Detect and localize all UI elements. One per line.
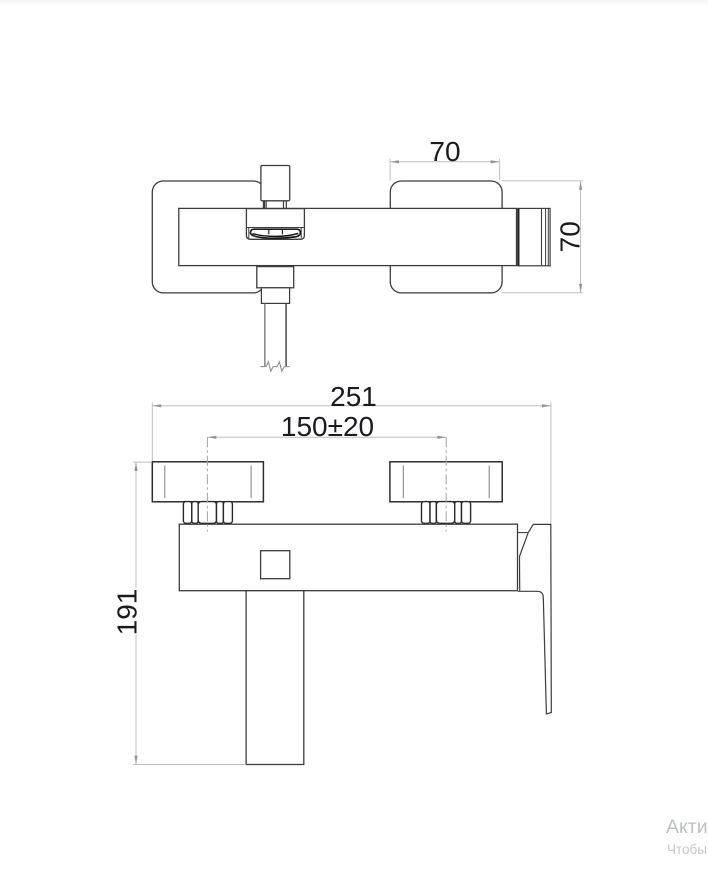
svg-text:150±20: 150±20 [281,411,374,442]
svg-text:191: 191 [112,589,143,636]
svg-text:70: 70 [555,221,586,252]
svg-text:70: 70 [429,136,460,167]
svg-text:251: 251 [330,381,377,412]
